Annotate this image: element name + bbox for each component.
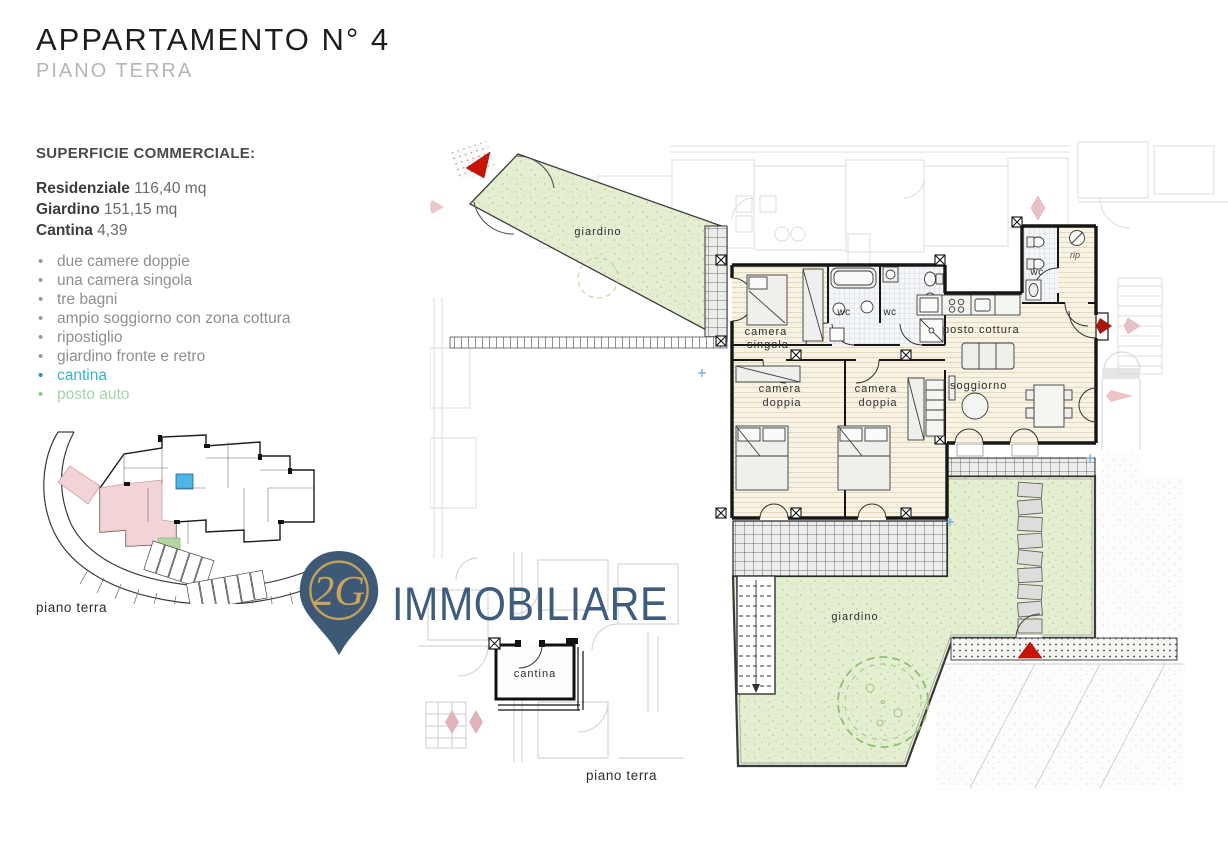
room-label-posto-cottura: posto cottura xyxy=(943,324,1020,336)
brochure-page: APPARTAMENTO N° 4 PIANO TERRA SUPERFICIE… xyxy=(0,0,1228,858)
room-label-wc1: wc xyxy=(836,307,850,318)
neighbor-pink-arrow-left xyxy=(430,200,444,214)
surface-rows: Residenziale 116,40 mq Giardino 151,15 m… xyxy=(36,178,255,241)
site-highlight-apartment-arm xyxy=(58,466,100,504)
logo-pin-icon: 2G xyxy=(296,550,382,656)
main-floor-plan-drawing: giardino xyxy=(430,138,1228,810)
feature-item: due camere doppie xyxy=(38,252,291,271)
agency-logo: 2G IMMOBILIARE xyxy=(296,550,706,656)
feature-item: ripostiglio xyxy=(38,328,291,347)
room-label-rip: rip xyxy=(1070,250,1080,260)
room-label-wc3: wc xyxy=(1029,267,1043,278)
neighbor-entry-arrow-icon xyxy=(1124,318,1140,334)
feature-item: una camera singola xyxy=(38,271,291,290)
site-key-plan xyxy=(28,428,320,609)
feature-item: giardino fronte e retro xyxy=(38,347,291,366)
feature-list: due camere doppie una camera singola tre… xyxy=(38,252,291,404)
site-highlight-cantina xyxy=(176,474,193,489)
main-floor-plan: giardino xyxy=(430,138,1228,815)
feature-item: ampio soggiorno con zona cottura xyxy=(38,309,291,328)
neighbor-pink-arrow-walkway xyxy=(1106,390,1133,402)
page-subtitle: PIANO TERRA xyxy=(36,60,390,83)
surface-heading: SUPERFICIE COMMERCIALE: xyxy=(36,145,255,162)
neighbor-plan-right xyxy=(1102,352,1140,450)
surface-row: Cantina 4,39 xyxy=(36,220,255,241)
garden-bottom-label: giardino xyxy=(831,611,878,623)
garden-top-label: giardino xyxy=(574,226,621,238)
entry-arrow-icon xyxy=(1096,318,1112,334)
outdoor-parking-area xyxy=(935,662,1185,790)
site-key-plan-drawing xyxy=(28,428,320,604)
feature-item-posto-auto: posto auto xyxy=(38,385,291,404)
site-building xyxy=(58,435,314,546)
logo-name: IMMOBILIARE xyxy=(392,576,668,631)
surface-row: Residenziale 116,40 mq xyxy=(36,178,255,199)
room-label-wc2: wc xyxy=(882,307,896,318)
page-title: APPARTAMENTO N° 4 xyxy=(36,22,390,58)
front-garden: giardino xyxy=(450,141,727,348)
room-label-camera-singola: camera singola xyxy=(745,326,792,351)
external-stairs xyxy=(737,576,775,694)
site-plan-caption: piano terra xyxy=(36,600,107,615)
rear-walkway xyxy=(951,638,1177,660)
stepping-stones xyxy=(1017,482,1042,633)
right-stipple-strip xyxy=(1098,476,1185,638)
neighbor-entry-arrow-top-icon xyxy=(1031,196,1045,220)
feature-item: tre bagni xyxy=(38,290,291,309)
header: APPARTAMENTO N° 4 PIANO TERRA xyxy=(36,22,390,83)
site-parking-stalls xyxy=(144,541,267,604)
surface-row: Giardino 151,15 mq xyxy=(36,199,255,220)
logo-monogram: 2G xyxy=(313,568,365,615)
room-label-soggiorno: soggiorno xyxy=(950,380,1007,392)
feature-item-cantina: cantina xyxy=(38,366,291,385)
surface-section: SUPERFICIE COMMERCIALE: Residenziale 116… xyxy=(36,145,255,241)
